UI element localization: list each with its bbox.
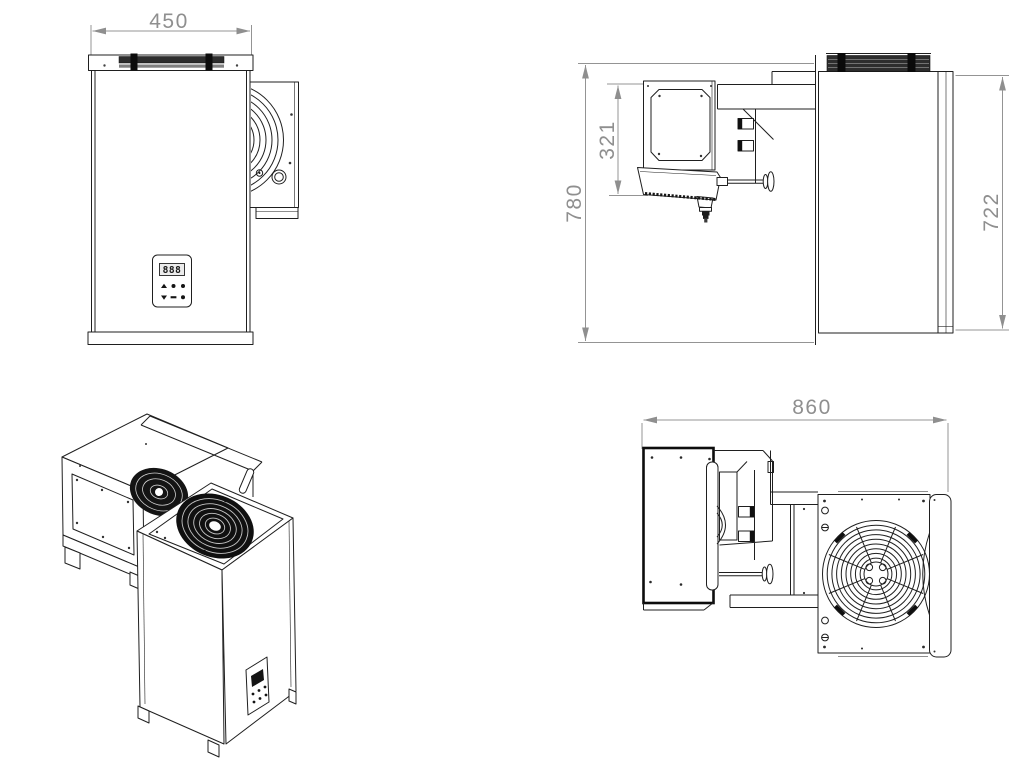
dimension-label-overall-height: 780 [563, 183, 586, 223]
drip-tray-side [638, 168, 721, 201]
condenser-body-side [819, 53, 954, 333]
top-view: 860 [642, 396, 951, 657]
evaporator-box-top [644, 448, 719, 610]
mounting-bracket-side [718, 72, 816, 184]
dimension-label-evaporator-height: 321 [596, 120, 619, 160]
drawing-sheet: 450 [0, 0, 1035, 775]
top-grille-side [826, 53, 931, 72]
evaporator-housing-top [714, 451, 774, 584]
pipe-connectors-side [738, 119, 754, 152]
dimension-label-front-width: 450 [149, 10, 189, 33]
dimension-label-overall-depth: 860 [792, 396, 832, 419]
side-view: 780 321 722 [563, 53, 1009, 345]
shutoff-knob-top [719, 564, 773, 584]
technical-drawing: 450 [0, 0, 1035, 775]
condenser-panel-top [818, 492, 951, 658]
dot-icon [181, 284, 185, 288]
pipe-connectors-top [739, 507, 755, 542]
front-base-strip [88, 332, 253, 345]
temperature-display: 888 [160, 264, 185, 277]
evaporator-side [638, 81, 775, 223]
front-view: 450 [88, 10, 299, 345]
svg-text:888: 888 [163, 265, 182, 276]
top-grille-front [89, 54, 254, 71]
dot-icon [181, 295, 185, 299]
shutoff-knob-side [717, 172, 774, 192]
drain-spout-icon [700, 208, 712, 223]
body-height-dimension: 722 [956, 76, 1010, 331]
mounting-bracket-top [730, 451, 818, 608]
front-width-dimension: 450 [91, 10, 252, 57]
hanger-slot [238, 468, 255, 495]
control-panel: 888 [153, 255, 192, 307]
isometric-view [62, 414, 296, 757]
dash-icon [171, 296, 177, 298]
dimension-label-body-height: 722 [980, 192, 1003, 232]
dot-icon [172, 284, 176, 288]
condenser-body-iso [137, 482, 296, 757]
